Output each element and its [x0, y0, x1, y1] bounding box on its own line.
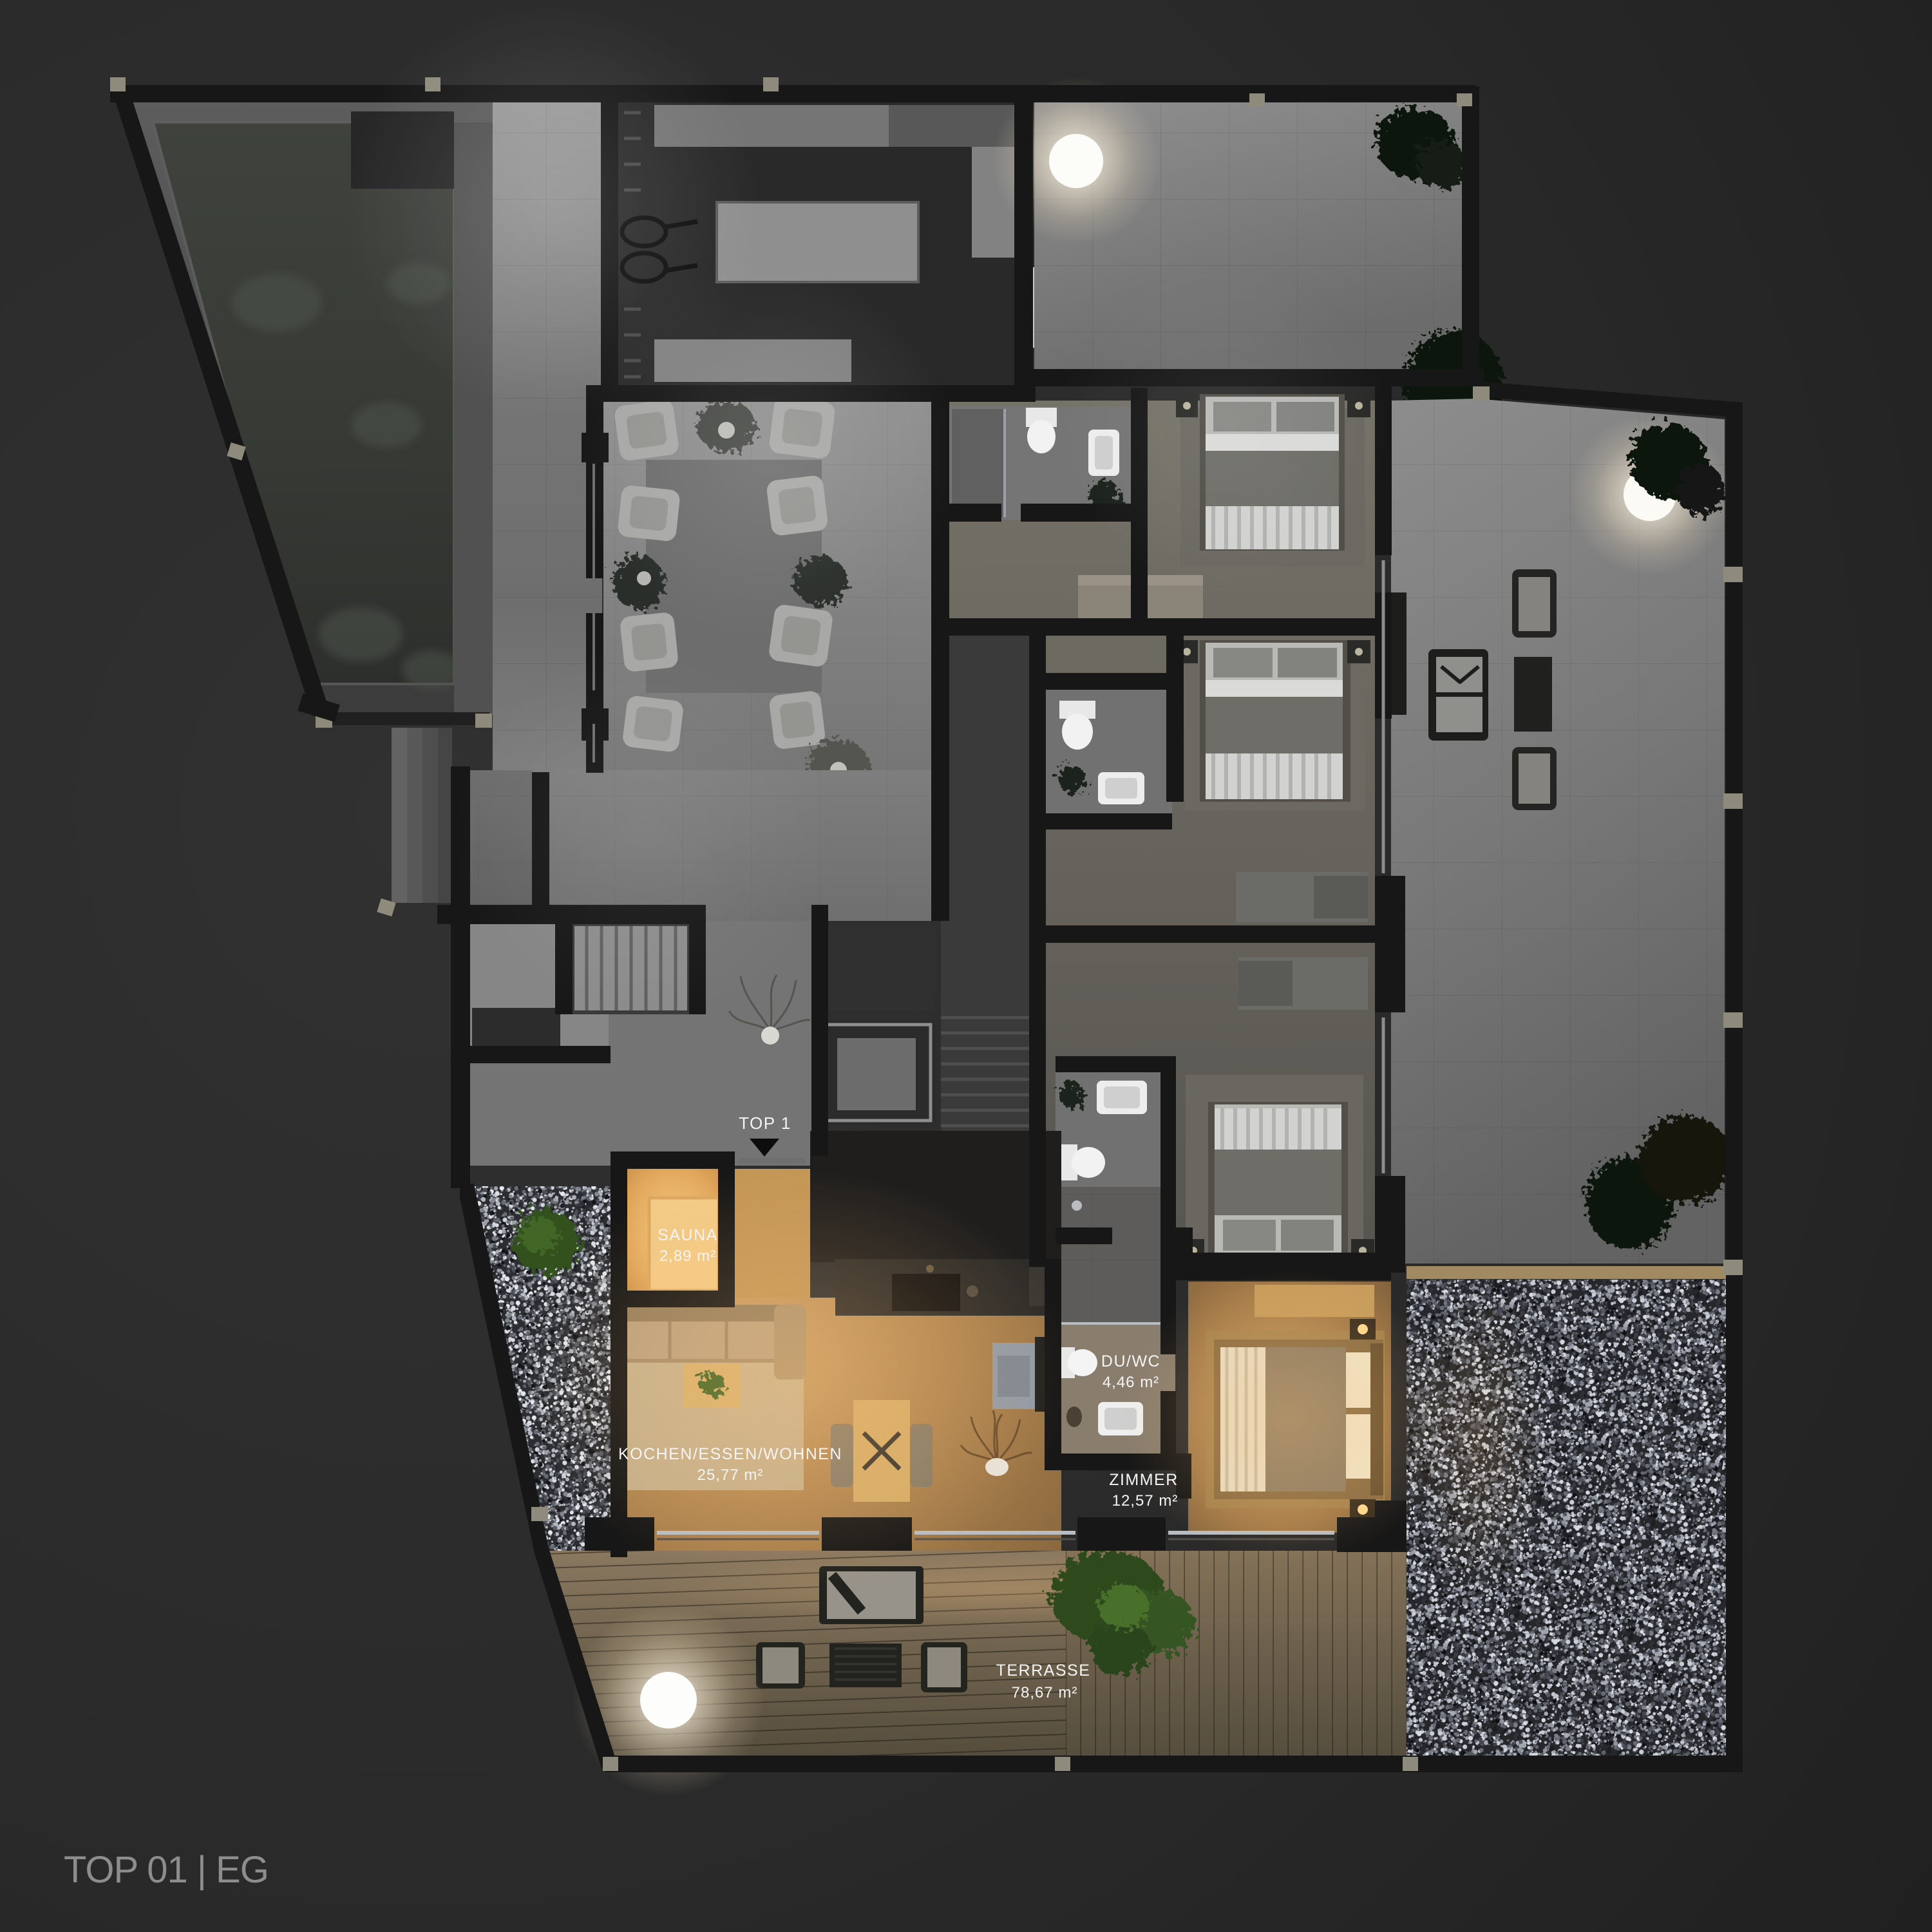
svg-text:ZIMMER: ZIMMER [1109, 1471, 1179, 1489]
svg-text:78,67 m²: 78,67 m² [1012, 1684, 1078, 1701]
svg-text:TOP 01 | EG: TOP 01 | EG [64, 1849, 269, 1891]
svg-text:4,46 m²: 4,46 m² [1103, 1374, 1159, 1391]
svg-text:SAUNA: SAUNA [658, 1226, 718, 1244]
svg-text:12,57 m²: 12,57 m² [1112, 1492, 1179, 1510]
svg-text:2,89 m²: 2,89 m² [659, 1247, 716, 1265]
svg-text:DU/WC: DU/WC [1101, 1352, 1160, 1370]
svg-text:TERRASSE: TERRASSE [996, 1662, 1091, 1680]
svg-text:TOP 1: TOP 1 [739, 1113, 791, 1133]
svg-text:25,77 m²: 25,77 m² [697, 1466, 764, 1484]
svg-text:KOCHEN/ESSEN/WOHNEN: KOCHEN/ESSEN/WOHNEN [618, 1445, 842, 1463]
